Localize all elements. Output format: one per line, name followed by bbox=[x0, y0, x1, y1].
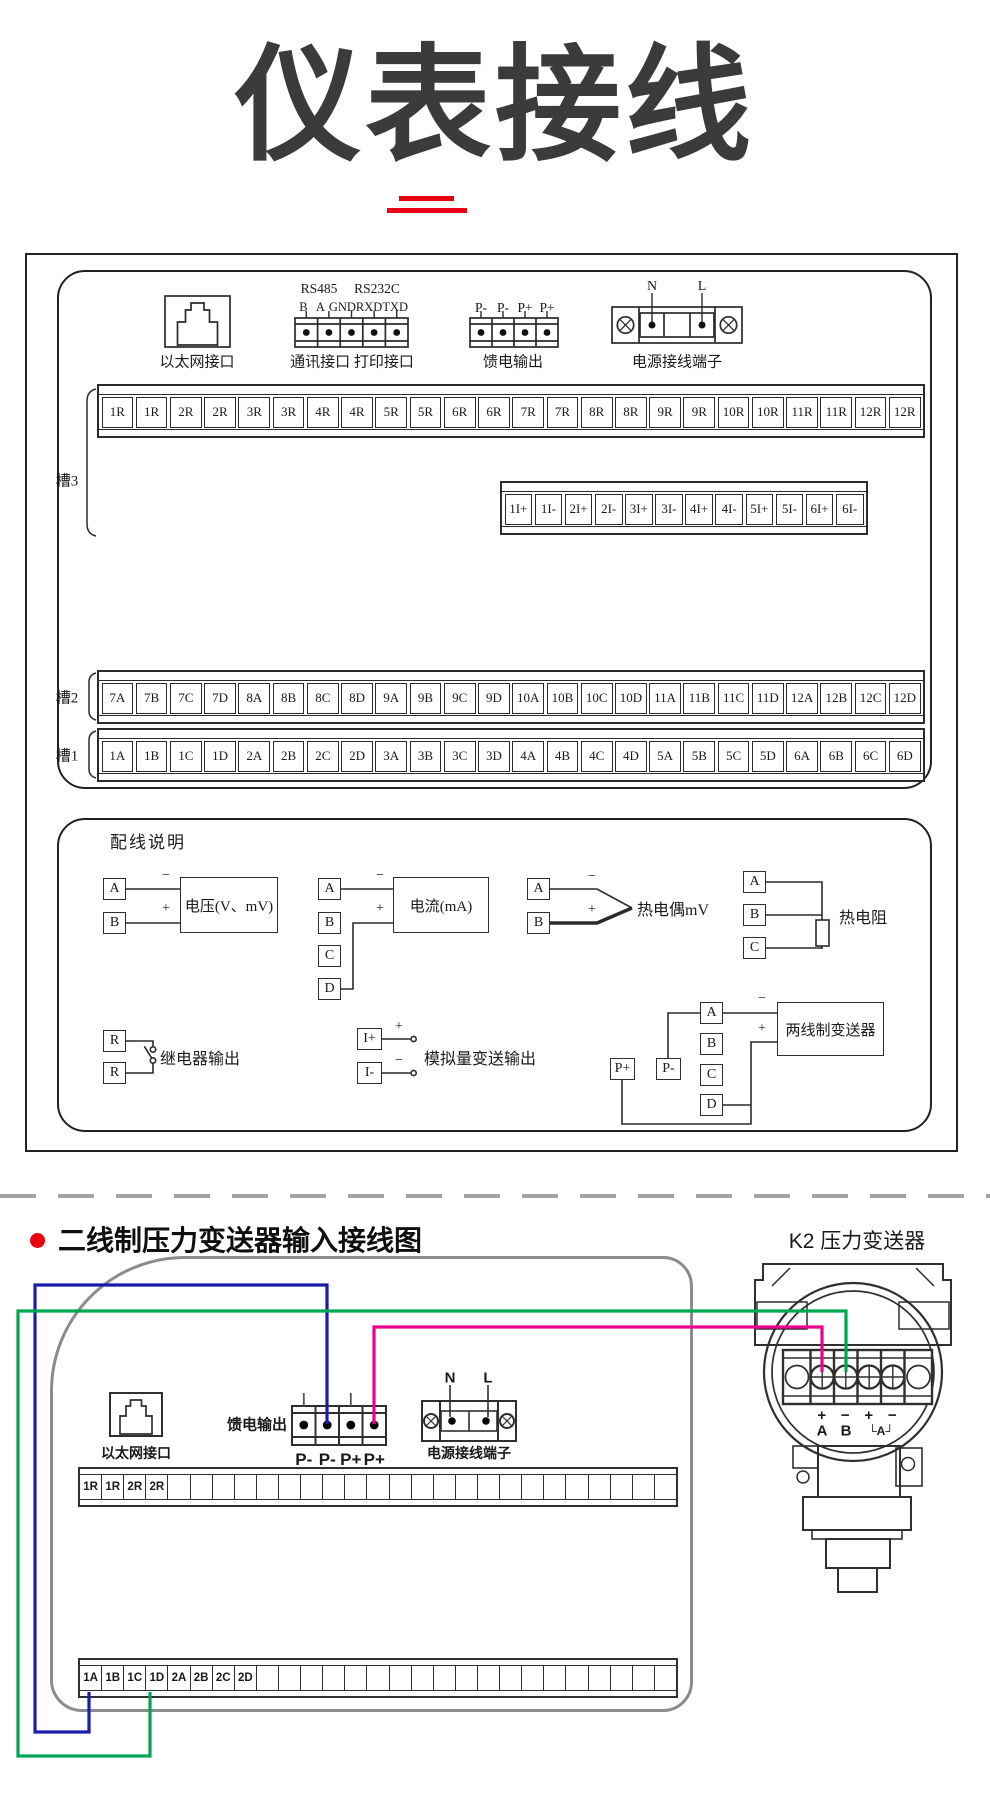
terminal-cell: 8D bbox=[341, 683, 373, 714]
terminal-cell bbox=[522, 1475, 544, 1499]
row-band bbox=[502, 483, 866, 492]
input-terminal-row: 1A1B1C1D2A2B2C2D bbox=[78, 1658, 678, 1698]
rs485-label: RS485 bbox=[301, 281, 338, 297]
terminal-cell: 2A bbox=[238, 741, 270, 772]
comm-pin-labels: BAGNDRXDTXD bbox=[295, 300, 408, 314]
pin-label: P- bbox=[292, 1450, 316, 1468]
terminal-cell: 9C bbox=[444, 683, 476, 714]
terminal-cell bbox=[412, 1475, 434, 1499]
terminal-cell: 8B bbox=[273, 683, 305, 714]
terminal-cell bbox=[500, 1666, 522, 1690]
terminal-cell: 12R bbox=[889, 397, 921, 428]
terminal-cell: 10D bbox=[615, 683, 647, 714]
terminal-cell bbox=[323, 1475, 345, 1499]
pin-label: P+ bbox=[363, 1450, 387, 1468]
terminal-box-b: B bbox=[527, 912, 550, 934]
terminal-cell bbox=[367, 1475, 389, 1499]
terminal-cell bbox=[345, 1475, 367, 1499]
terminal-cell: 6D bbox=[889, 741, 921, 772]
terminal-box-a: A bbox=[700, 1002, 723, 1024]
pressure-transmitter-drawing bbox=[755, 1264, 951, 1592]
terminal-cell: 2C bbox=[213, 1666, 235, 1690]
terminal-cell: 6R bbox=[478, 397, 510, 428]
rs232c-label: RS232C bbox=[354, 281, 400, 297]
transmitter-terminal-a: A bbox=[817, 1423, 828, 1440]
terminal-cell: 2I+ bbox=[565, 494, 593, 525]
pin-label: P+ bbox=[536, 300, 558, 314]
current-device-box: 电流(mA) bbox=[393, 877, 489, 933]
terminal-cell: 5R bbox=[410, 397, 442, 428]
terminal-cell bbox=[589, 1666, 611, 1690]
terminal-cell: 3B bbox=[410, 741, 442, 772]
terminal-cell: 4A bbox=[512, 741, 544, 772]
terminal-cell: 4C bbox=[581, 741, 613, 772]
terminal-cell: 4R bbox=[307, 397, 339, 428]
pin-label: P- bbox=[470, 300, 492, 314]
terminal-cell bbox=[611, 1666, 633, 1690]
terminal-cell bbox=[544, 1475, 566, 1499]
transmitter-loop-check-mark: └A┘ bbox=[868, 1424, 894, 1438]
terminal-cell bbox=[168, 1475, 190, 1499]
two-wire-device-box: 两线制变送器 bbox=[777, 1002, 884, 1056]
transmitter-housing bbox=[755, 1264, 951, 1345]
terminal-cell: 9B bbox=[410, 683, 442, 714]
terminal-cell: 7R bbox=[512, 397, 544, 428]
terminal-cell: 2B bbox=[191, 1666, 213, 1690]
power-caption: 电源接线端子 bbox=[427, 1443, 511, 1463]
terminal-cell: 9R bbox=[649, 397, 681, 428]
terminal-cell: 9A bbox=[375, 683, 407, 714]
terminal-cell: 5C bbox=[718, 741, 750, 772]
terminal-cell bbox=[279, 1475, 301, 1499]
terminal-box-iminus: I- bbox=[357, 1062, 382, 1084]
terminal-cell: 2B bbox=[273, 741, 305, 772]
pin-label: RXD bbox=[356, 300, 382, 314]
terminal-cell: 5I+ bbox=[746, 494, 774, 525]
terminal-cell: 6I- bbox=[836, 494, 864, 525]
terminal-cell: 2R bbox=[146, 1475, 168, 1499]
pin-label: + bbox=[810, 1407, 834, 1423]
feed-caption: 馈电输出 bbox=[227, 1414, 287, 1435]
polarity-plus: + bbox=[588, 902, 596, 918]
terminal-cell: 3R bbox=[273, 397, 305, 428]
terminal-cell bbox=[235, 1475, 257, 1499]
polarity-plus: + bbox=[758, 1021, 766, 1037]
terminal-cell: 5B bbox=[683, 741, 715, 772]
row-band bbox=[80, 1690, 676, 1696]
terminal-cell: 5A bbox=[649, 741, 681, 772]
terminal-cell bbox=[655, 1475, 676, 1499]
terminal-cell: 4I+ bbox=[685, 494, 713, 525]
terminal-cell: 2D bbox=[341, 741, 373, 772]
terminal-cell: 12R bbox=[855, 397, 887, 428]
terminal-cell: 7R bbox=[547, 397, 579, 428]
transmitter-body-circle bbox=[764, 1283, 942, 1461]
title-underline-long bbox=[387, 208, 467, 213]
terminal-cell: 6C bbox=[855, 741, 887, 772]
terminal-cell: 12C bbox=[855, 683, 887, 714]
terminal-cell: 1D bbox=[146, 1666, 168, 1690]
terminal-cell bbox=[301, 1475, 323, 1499]
terminal-cell bbox=[566, 1666, 588, 1690]
slot2-terminal-row: 7A7B7C7D8A8B8C8D9A9B9C9D10A10B10C10D11A1… bbox=[97, 670, 925, 724]
polarity-plus: + bbox=[376, 901, 384, 917]
current-loop-terminal-row: 1I+1I-2I+2I-3I+3I-4I+4I-5I+5I-6I+6I- bbox=[500, 481, 868, 535]
slot2-label: 槽2 bbox=[56, 687, 79, 708]
power-caption: 电源接线端子 bbox=[632, 351, 722, 372]
polarity-minus: − bbox=[376, 868, 384, 884]
terminal-box-pplus: P+ bbox=[610, 1058, 635, 1080]
terminal-cell: 1R bbox=[136, 397, 168, 428]
terminal-cell: 3A bbox=[375, 741, 407, 772]
terminal-cell bbox=[655, 1666, 676, 1690]
terminal-cell: 2R bbox=[170, 397, 202, 428]
feed-pin-labels: P-P-P+P+ bbox=[470, 300, 558, 314]
terminal-cell: 11B bbox=[683, 683, 715, 714]
row-band bbox=[99, 672, 923, 681]
terminal-cell bbox=[213, 1475, 235, 1499]
terminal-cell: 11C bbox=[718, 683, 750, 714]
row-band bbox=[99, 429, 923, 436]
terminal-cell: 5I- bbox=[776, 494, 804, 525]
terminal-cell: 11D bbox=[752, 683, 784, 714]
terminal-cell bbox=[522, 1666, 544, 1690]
pin-label: P- bbox=[316, 1450, 340, 1468]
title-underline-short bbox=[399, 196, 454, 201]
polarity-plus: + bbox=[395, 1019, 403, 1035]
terminal-cell: 1R bbox=[102, 1475, 124, 1499]
terminal-cell: 12B bbox=[820, 683, 852, 714]
terminal-cell: 3I- bbox=[655, 494, 683, 525]
terminal-cell: 1D bbox=[204, 741, 236, 772]
terminal-box-c: C bbox=[318, 945, 341, 967]
row-band bbox=[502, 526, 866, 533]
terminal-cell bbox=[544, 1666, 566, 1690]
power-l-label: L bbox=[698, 279, 707, 295]
terminal-box-b: B bbox=[743, 904, 766, 926]
terminal-cell: 10R bbox=[718, 397, 750, 428]
ethernet-caption: 以太网接口 bbox=[159, 351, 234, 372]
transmitter-polarity-marks: +−+− bbox=[810, 1407, 904, 1423]
terminal-cell: 1B bbox=[136, 741, 168, 772]
terminal-cell bbox=[390, 1475, 412, 1499]
page-title: 仪表接线 bbox=[0, 40, 990, 172]
terminal-cell: 6A bbox=[786, 741, 818, 772]
terminal-cell bbox=[456, 1475, 478, 1499]
terminal-box-b: B bbox=[318, 912, 341, 934]
terminal-cell: 3R bbox=[238, 397, 270, 428]
terminal-cell bbox=[589, 1475, 611, 1499]
transmitter-terminal-b: B bbox=[841, 1423, 852, 1440]
pin-label: GND bbox=[329, 300, 356, 314]
terminal-cell: 10B bbox=[547, 683, 579, 714]
row-band bbox=[99, 773, 923, 780]
terminal-box-r1: R bbox=[103, 1030, 126, 1052]
terminal-cell: 4R bbox=[341, 397, 373, 428]
terminal-cell: 7B bbox=[136, 683, 168, 714]
transmitter-title: K2 压力变送器 bbox=[789, 1225, 926, 1255]
terminal-cell bbox=[257, 1475, 279, 1499]
terminal-cell: 1A bbox=[80, 1666, 102, 1690]
terminal-box-c: C bbox=[743, 937, 766, 959]
terminal-cell: 2D bbox=[235, 1666, 257, 1690]
terminal-cell: 5D bbox=[752, 741, 784, 772]
voltage-device-box: 电压(V、mV) bbox=[180, 877, 278, 933]
row-band bbox=[99, 730, 923, 739]
rtd-label: 热电阻 bbox=[839, 904, 887, 928]
terminal-cell: 12A bbox=[786, 683, 818, 714]
transmitter-terminal-block bbox=[783, 1350, 932, 1404]
pin-label: − bbox=[881, 1407, 905, 1423]
terminal-cell: 1C bbox=[170, 741, 202, 772]
terminal-cell: 5R bbox=[375, 397, 407, 428]
terminal-cell: 6B bbox=[820, 741, 852, 772]
terminal-cell: 3I+ bbox=[625, 494, 653, 525]
slot1-label: 槽1 bbox=[56, 745, 79, 766]
section-bullet bbox=[30, 1233, 45, 1248]
terminal-cell bbox=[412, 1666, 434, 1690]
terminal-cell: 7C bbox=[170, 683, 202, 714]
row-band bbox=[99, 715, 923, 722]
power-n-label: N bbox=[647, 279, 657, 295]
terminal-box-a: A bbox=[527, 878, 550, 900]
pin-label: TXD bbox=[382, 300, 408, 314]
terminal-cell: 3D bbox=[478, 741, 510, 772]
polarity-minus: − bbox=[588, 869, 596, 885]
row-band bbox=[80, 1499, 676, 1505]
row-band bbox=[99, 386, 923, 395]
terminal-cell bbox=[345, 1666, 367, 1690]
thermocouple-label: 热电偶mV bbox=[637, 896, 709, 920]
pin-label: P+ bbox=[339, 1450, 363, 1468]
terminal-cell bbox=[633, 1475, 655, 1499]
terminal-cell: 2A bbox=[168, 1666, 190, 1690]
terminal-cell: 7D bbox=[204, 683, 236, 714]
terminal-cell: 1R bbox=[102, 397, 134, 428]
terminal-cell bbox=[633, 1666, 655, 1690]
polarity-minus: − bbox=[395, 1053, 403, 1069]
terminal-cell bbox=[301, 1666, 323, 1690]
terminal-cell bbox=[390, 1666, 412, 1690]
terminal-cell: 6R bbox=[444, 397, 476, 428]
slot3-terminal-row: 1R1R2R2R3R3R4R4R5R5R6R6R7R7R8R8R9R9R10R1… bbox=[97, 384, 925, 438]
terminal-cell bbox=[257, 1666, 279, 1690]
transmitter-screw-terminals bbox=[811, 1366, 905, 1389]
terminal-cell bbox=[478, 1666, 500, 1690]
terminal-cell: 2C bbox=[307, 741, 339, 772]
pin-label: P- bbox=[492, 300, 514, 314]
terminal-cell bbox=[279, 1666, 301, 1690]
pin-label: + bbox=[857, 1407, 881, 1423]
ethernet-caption: 以太网接口 bbox=[101, 1443, 171, 1463]
terminal-cell: 8R bbox=[615, 397, 647, 428]
terminal-cell bbox=[367, 1666, 389, 1690]
terminal-cell: 8A bbox=[238, 683, 270, 714]
terminal-cell: 6I+ bbox=[806, 494, 834, 525]
terminal-cell: 11R bbox=[820, 397, 852, 428]
terminal-box-iplus: I+ bbox=[357, 1028, 382, 1050]
slot3-label: 槽3 bbox=[56, 470, 79, 491]
terminal-cell bbox=[456, 1666, 478, 1690]
terminal-cell: 1R bbox=[80, 1475, 102, 1499]
feed-pin-labels: P-P-P+P+ bbox=[292, 1450, 386, 1468]
terminal-cell: 9D bbox=[478, 683, 510, 714]
terminal-cell: 12D bbox=[889, 683, 921, 714]
pin-label: − bbox=[834, 1407, 858, 1423]
terminal-cell: 7A bbox=[102, 683, 134, 714]
terminal-cell bbox=[191, 1475, 213, 1499]
terminal-cell: 2I- bbox=[595, 494, 623, 525]
terminal-cell bbox=[434, 1666, 456, 1690]
terminal-cell: 4I- bbox=[715, 494, 743, 525]
terminal-box-d: D bbox=[700, 1094, 723, 1116]
slot1-terminal-row: 1A1B1C1D2A2B2C2D3A3B3C3D4A4B4C4D5A5B5C5D… bbox=[97, 728, 925, 782]
section2-heading: 二线制压力变送器输入接线图 bbox=[58, 1219, 422, 1259]
relay-terminal-row: 1R1R2R2R bbox=[78, 1467, 678, 1507]
terminal-cell bbox=[500, 1475, 522, 1499]
polarity-plus: + bbox=[162, 901, 170, 917]
terminal-cell: 2R bbox=[204, 397, 236, 428]
terminal-cell: 11A bbox=[649, 683, 681, 714]
terminal-cell: 8C bbox=[307, 683, 339, 714]
wiring-legend-title: 配线说明 bbox=[110, 828, 186, 853]
power-n-label: N bbox=[445, 1370, 456, 1387]
terminal-cell: 10C bbox=[581, 683, 613, 714]
terminal-box-a: A bbox=[103, 878, 126, 900]
terminal-box-b: B bbox=[103, 912, 126, 934]
terminal-box-r2: R bbox=[103, 1062, 126, 1084]
terminal-cell: 10A bbox=[512, 683, 544, 714]
terminal-cell bbox=[323, 1666, 345, 1690]
terminal-cell: 1B bbox=[102, 1666, 124, 1690]
wiring-legend-box bbox=[57, 818, 932, 1132]
terminal-cell: 3C bbox=[444, 741, 476, 772]
pin-label: B bbox=[295, 300, 312, 314]
pin-label: P+ bbox=[514, 300, 536, 314]
analog-output-label: 模拟量变送输出 bbox=[424, 1045, 536, 1069]
terminal-box-a: A bbox=[743, 871, 766, 893]
terminal-cell bbox=[566, 1475, 588, 1499]
terminal-cell: 4D bbox=[615, 741, 647, 772]
terminal-cell: 1I- bbox=[535, 494, 563, 525]
terminal-box-d: D bbox=[318, 978, 341, 1000]
pin-label: A bbox=[312, 300, 329, 314]
polarity-minus: − bbox=[758, 991, 766, 1007]
terminal-cell bbox=[478, 1475, 500, 1499]
comm-caption: 通讯接口 打印接口 bbox=[290, 351, 414, 372]
terminal-cell: 2R bbox=[124, 1475, 146, 1499]
terminal-box-b: B bbox=[700, 1033, 723, 1055]
terminal-cell bbox=[611, 1475, 633, 1499]
terminal-box-pminus: P- bbox=[656, 1058, 681, 1080]
terminal-cell bbox=[434, 1475, 456, 1499]
terminal-cell: 9R bbox=[683, 397, 715, 428]
terminal-box-a: A bbox=[318, 878, 341, 900]
relay-label: 继电器输出 bbox=[160, 1045, 240, 1069]
terminal-cell: 1A bbox=[102, 741, 134, 772]
feed-caption: 馈电输出 bbox=[483, 351, 543, 372]
page: 仪表接线 RS485 RS232C BAGNDRXDTXD P-P-P+P+ N… bbox=[0, 0, 990, 1798]
terminal-box-c: C bbox=[700, 1064, 723, 1086]
terminal-cell: 10R bbox=[752, 397, 784, 428]
terminal-cell: 8R bbox=[581, 397, 613, 428]
terminal-cell: 1C bbox=[124, 1666, 146, 1690]
terminal-cell: 1I+ bbox=[505, 494, 533, 525]
power-l-label: L bbox=[483, 1370, 492, 1387]
polarity-minus: − bbox=[162, 868, 170, 884]
terminal-cell: 4B bbox=[547, 741, 579, 772]
terminal-cell: 11R bbox=[786, 397, 818, 428]
